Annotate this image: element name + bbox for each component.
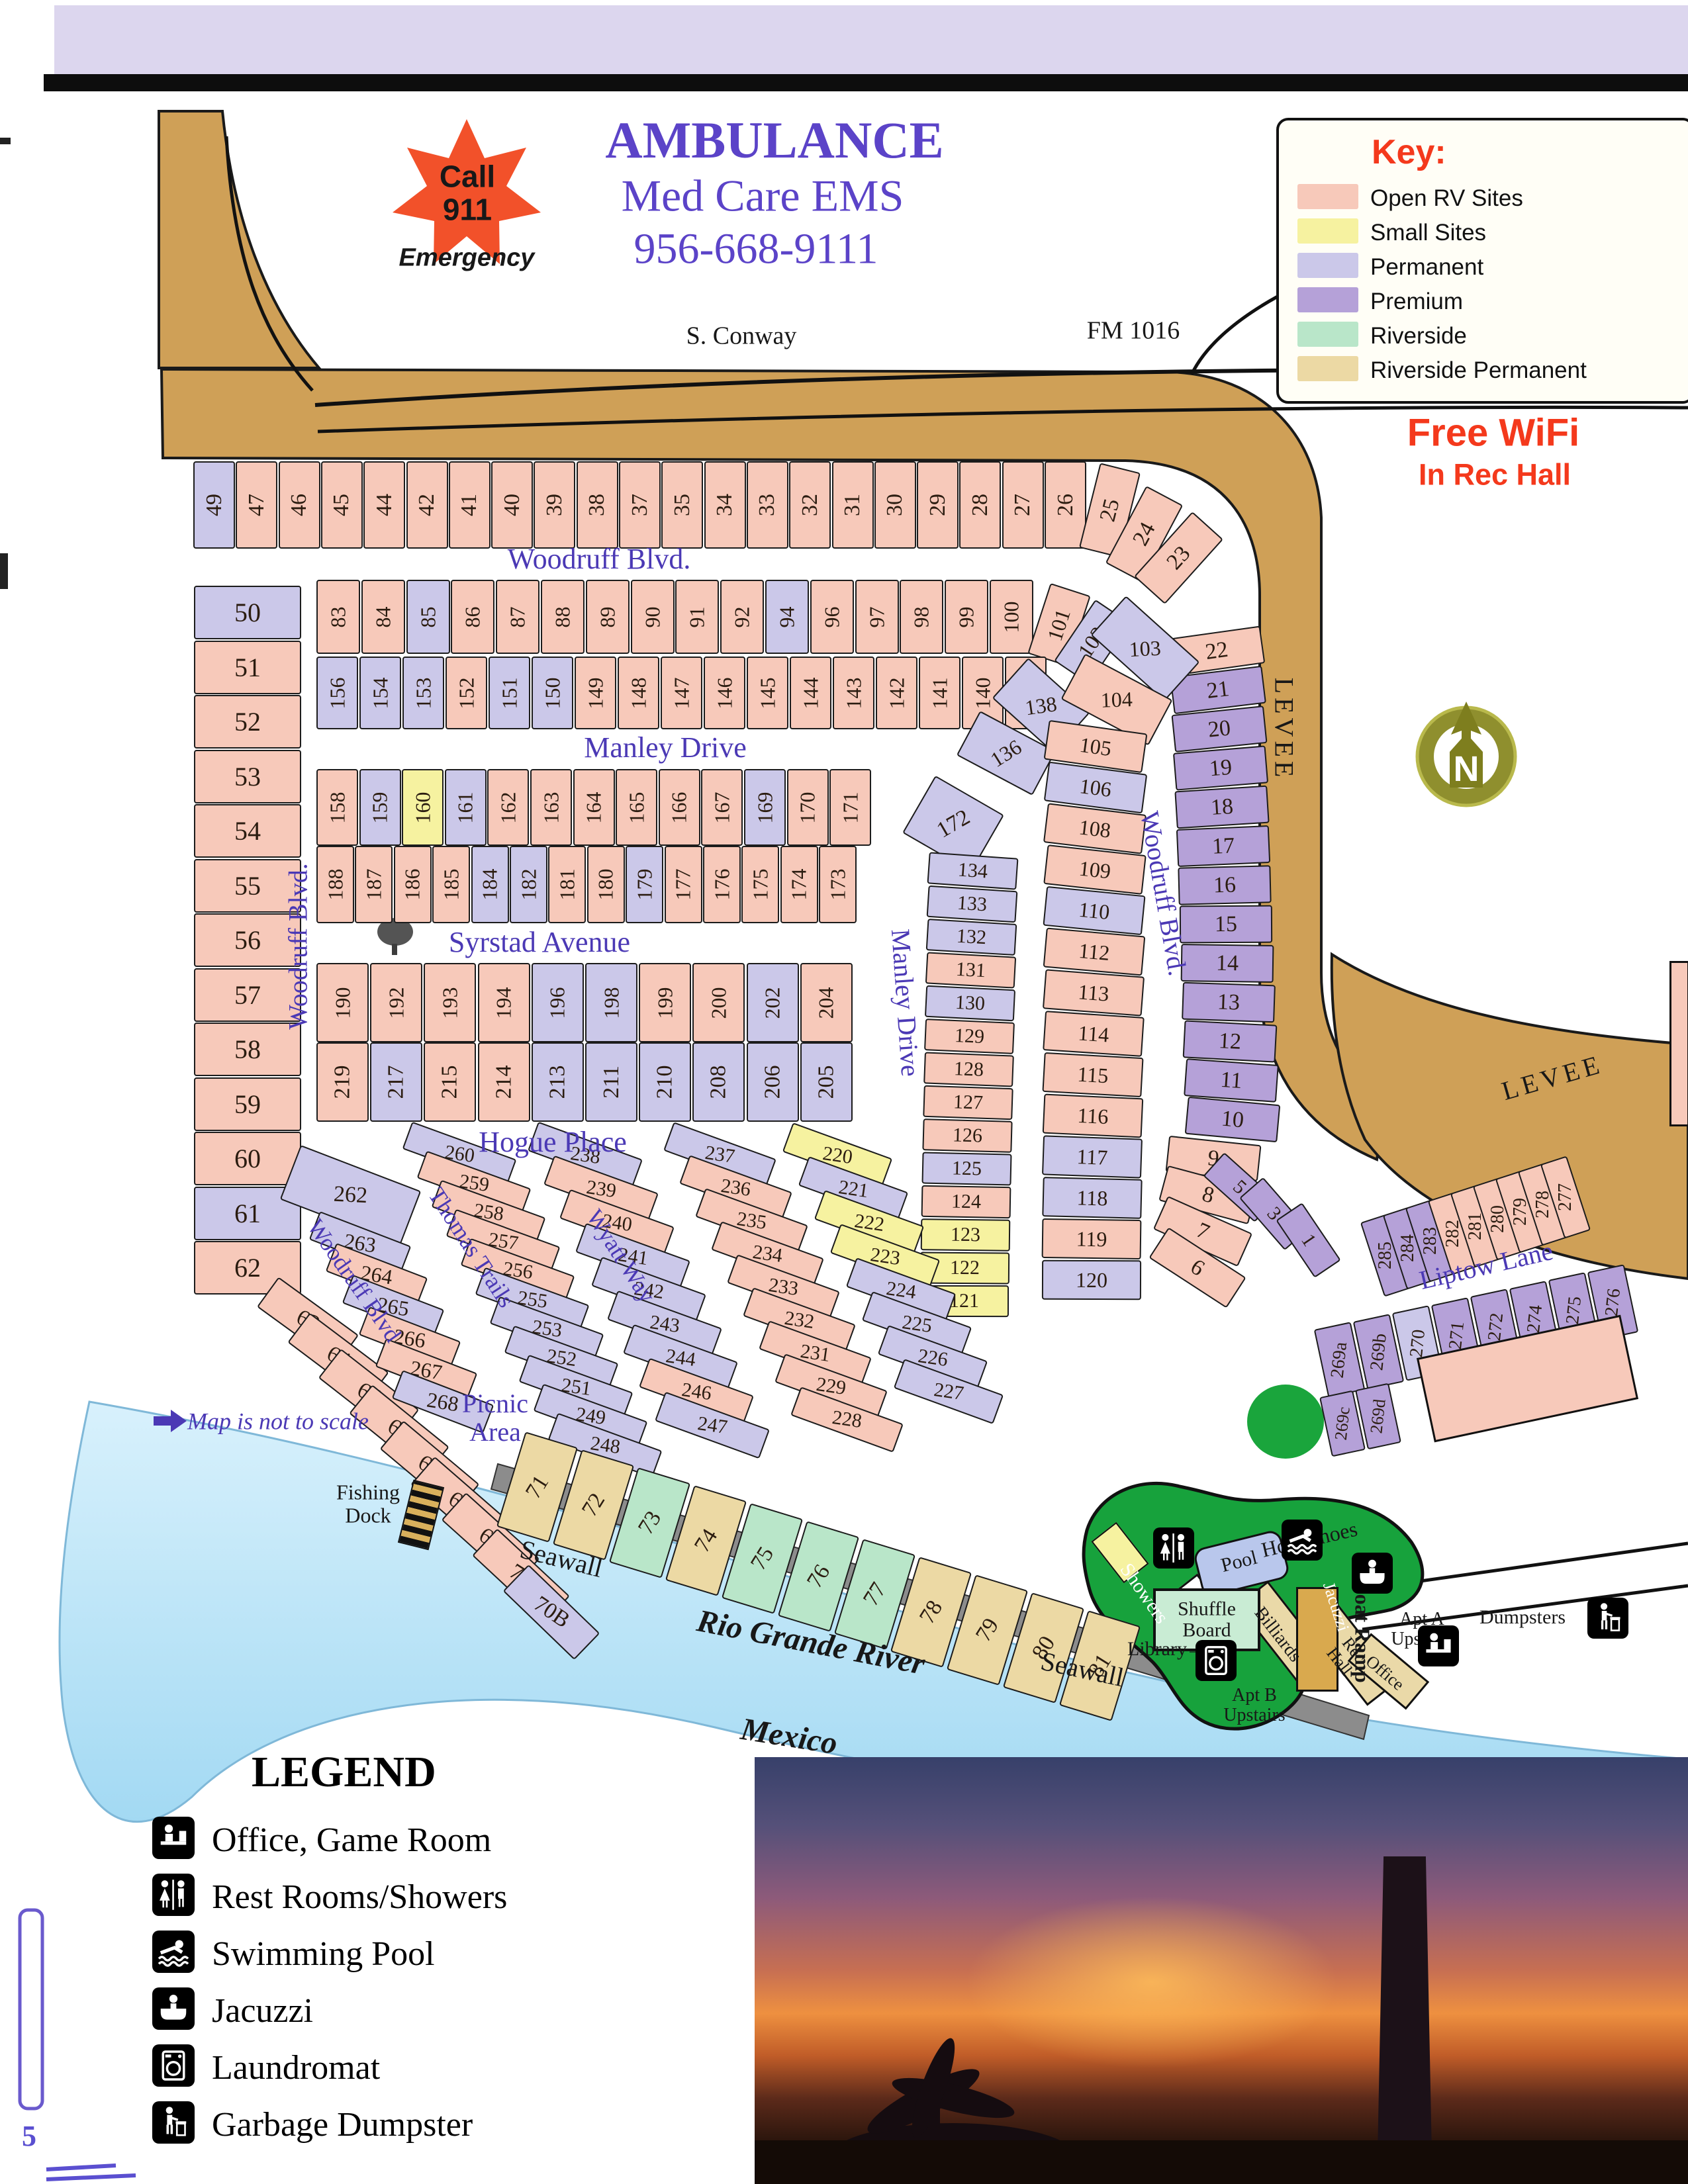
key-swatch bbox=[1297, 253, 1358, 278]
site-143: 143 bbox=[833, 657, 874, 729]
site-150: 150 bbox=[532, 657, 573, 729]
site-99: 99 bbox=[945, 580, 988, 654]
site-15: 15 bbox=[1180, 905, 1272, 944]
site-97: 97 bbox=[855, 580, 899, 654]
site-165: 165 bbox=[616, 769, 657, 846]
site-87: 87 bbox=[496, 580, 539, 654]
site-128: 128 bbox=[923, 1052, 1014, 1087]
site-215: 215 bbox=[424, 1042, 476, 1122]
map-label: Woodruff Blvd. bbox=[283, 863, 312, 1030]
key-item-label: Premium bbox=[1370, 289, 1463, 315]
site-17: 17 bbox=[1176, 825, 1270, 867]
site-200: 200 bbox=[692, 963, 745, 1042]
site-53: 53 bbox=[194, 750, 301, 803]
site-92: 92 bbox=[720, 580, 764, 654]
site-44: 44 bbox=[363, 461, 405, 549]
site-120: 120 bbox=[1041, 1260, 1141, 1300]
site-58: 58 bbox=[194, 1023, 301, 1076]
site-171: 171 bbox=[829, 769, 871, 846]
site-169: 169 bbox=[744, 769, 786, 846]
page-edge-mark bbox=[0, 138, 11, 144]
key-swatch bbox=[1297, 356, 1358, 381]
site-177: 177 bbox=[665, 846, 702, 923]
page-artifact bbox=[46, 2175, 136, 2179]
map-label: In Rec Hall bbox=[1419, 459, 1571, 492]
site-170: 170 bbox=[787, 769, 829, 846]
site-144: 144 bbox=[790, 657, 831, 729]
site-219: 219 bbox=[316, 1042, 369, 1122]
site-161: 161 bbox=[445, 769, 487, 846]
map-label: 956-668-9111 bbox=[633, 225, 878, 272]
map-label: Free WiFi bbox=[1407, 413, 1580, 455]
key-swatch bbox=[1297, 287, 1358, 312]
site-162: 162 bbox=[487, 769, 529, 846]
open-rv-block-edge bbox=[1669, 961, 1688, 1126]
site-11: 11 bbox=[1184, 1058, 1279, 1103]
site-49: 49 bbox=[193, 461, 235, 549]
site-40: 40 bbox=[491, 461, 533, 549]
site-37: 37 bbox=[619, 461, 661, 549]
sunset-photo bbox=[755, 1757, 1688, 2184]
site-16: 16 bbox=[1178, 865, 1271, 905]
site-30: 30 bbox=[874, 461, 916, 549]
site-88: 88 bbox=[541, 580, 585, 654]
key-swatch bbox=[1297, 218, 1358, 244]
site-114: 114 bbox=[1043, 1011, 1145, 1057]
key-item-label: Open RV Sites bbox=[1370, 185, 1523, 212]
site-32: 32 bbox=[789, 461, 831, 549]
map-label: Woodruff Blvd. bbox=[508, 543, 691, 575]
map-key: Key: Open RV SitesSmall SitesPermanentPr… bbox=[1276, 118, 1688, 404]
site-115: 115 bbox=[1042, 1052, 1143, 1097]
site-217: 217 bbox=[370, 1042, 422, 1122]
site-194: 194 bbox=[478, 963, 530, 1042]
site-199: 199 bbox=[639, 963, 691, 1042]
site-181: 181 bbox=[548, 846, 586, 923]
site-83: 83 bbox=[316, 580, 360, 654]
site-85: 85 bbox=[406, 580, 450, 654]
key-item: Premium bbox=[1279, 287, 1688, 314]
site-146: 146 bbox=[704, 657, 745, 729]
site-38: 38 bbox=[577, 461, 618, 549]
map-label: Med Care EMS bbox=[622, 171, 904, 220]
site-131: 131 bbox=[925, 952, 1016, 988]
site-127: 127 bbox=[923, 1085, 1013, 1120]
map-label: Fishing Dock bbox=[336, 1480, 400, 1526]
site-13: 13 bbox=[1182, 982, 1276, 1023]
jacuzzi-icon bbox=[152, 1987, 195, 2030]
legend-item-label: Swimming Pool bbox=[212, 1934, 435, 1974]
site-173: 173 bbox=[819, 846, 857, 923]
rest-rooms-showers-icon bbox=[152, 1874, 195, 1916]
site-188: 188 bbox=[316, 846, 354, 923]
site-152: 152 bbox=[445, 657, 487, 729]
site-180: 180 bbox=[587, 846, 625, 923]
key-swatch bbox=[1297, 184, 1358, 209]
garbage-dumpster-icon bbox=[152, 2101, 195, 2144]
map-label: Hogue Place bbox=[479, 1126, 627, 1158]
site-182: 182 bbox=[510, 846, 547, 923]
site-148: 148 bbox=[618, 657, 659, 729]
site-145: 145 bbox=[747, 657, 788, 729]
key-swatch bbox=[1297, 322, 1358, 347]
site-98: 98 bbox=[900, 580, 943, 654]
legend-item-label: Rest Rooms/Showers bbox=[212, 1878, 507, 1917]
site-113: 113 bbox=[1043, 969, 1145, 1016]
key-item: Riverside bbox=[1279, 322, 1688, 348]
site-18: 18 bbox=[1174, 786, 1269, 829]
site-133: 133 bbox=[927, 886, 1018, 923]
site-192: 192 bbox=[370, 963, 422, 1042]
site-46: 46 bbox=[279, 461, 320, 549]
site-159: 159 bbox=[359, 769, 401, 846]
site-125: 125 bbox=[921, 1152, 1011, 1185]
key-title: Key: bbox=[1372, 132, 1446, 172]
site-130: 130 bbox=[925, 985, 1015, 1022]
map-label: FM 1016 bbox=[1087, 317, 1180, 344]
site-213: 213 bbox=[532, 1042, 584, 1122]
site-205: 205 bbox=[800, 1042, 853, 1122]
site-214: 214 bbox=[478, 1042, 530, 1122]
site-96: 96 bbox=[810, 580, 854, 654]
site-186: 186 bbox=[394, 846, 432, 923]
map-label: AMBULANCE bbox=[605, 113, 943, 168]
page-edge-mark bbox=[0, 553, 8, 589]
key-item: Open RV Sites bbox=[1279, 184, 1688, 210]
site-27: 27 bbox=[1002, 461, 1044, 549]
site-35: 35 bbox=[661, 461, 703, 549]
site-89: 89 bbox=[586, 580, 630, 654]
rest-rooms-icon bbox=[1153, 1527, 1194, 1569]
jacuzzi-icon bbox=[1352, 1553, 1393, 1594]
site-149: 149 bbox=[575, 657, 616, 729]
site-132: 132 bbox=[926, 919, 1017, 956]
key-item-label: Riverside Permanent bbox=[1370, 357, 1587, 384]
office-game-room-icon bbox=[152, 1817, 195, 1859]
site-175: 175 bbox=[741, 846, 779, 923]
site-33: 33 bbox=[747, 461, 788, 549]
site-134: 134 bbox=[927, 852, 1018, 889]
key-item-label: Riverside bbox=[1370, 323, 1467, 349]
key-item-label: Small Sites bbox=[1370, 220, 1486, 246]
office-game-room-icon bbox=[1418, 1625, 1459, 1666]
site-119: 119 bbox=[1042, 1218, 1142, 1259]
legend-item-label: Laundromat bbox=[212, 2048, 380, 2087]
site-117: 117 bbox=[1042, 1135, 1143, 1178]
top-lavender-bar bbox=[54, 5, 1688, 74]
map-label: Boat Ramp bbox=[1351, 1580, 1374, 1683]
site-141: 141 bbox=[919, 657, 961, 729]
site-160: 160 bbox=[402, 769, 444, 846]
key-item: Riverside Permanent bbox=[1279, 356, 1688, 383]
site-167: 167 bbox=[701, 769, 743, 846]
site-42: 42 bbox=[406, 461, 448, 549]
site-208: 208 bbox=[692, 1042, 745, 1122]
site-206: 206 bbox=[747, 1042, 799, 1122]
map-label: Manley Drive bbox=[584, 732, 747, 764]
site-202: 202 bbox=[747, 963, 799, 1042]
site-163: 163 bbox=[530, 769, 572, 846]
map-label: 5 bbox=[22, 2120, 36, 2152]
site-28: 28 bbox=[959, 461, 1001, 549]
site-142: 142 bbox=[876, 657, 917, 729]
rv-park-map-page: N Key: Open RV SitesSmall SitesPermanent… bbox=[0, 0, 1688, 2184]
site-94: 94 bbox=[765, 580, 809, 654]
site-211: 211 bbox=[585, 1042, 637, 1122]
site-174: 174 bbox=[780, 846, 818, 923]
site-54: 54 bbox=[194, 804, 301, 858]
site-51: 51 bbox=[194, 641, 301, 694]
site-100: 100 bbox=[990, 580, 1033, 654]
site-91: 91 bbox=[675, 580, 719, 654]
swimming-pool-icon bbox=[152, 1931, 195, 1973]
legend-item-label: Jacuzzi bbox=[212, 1991, 313, 2030]
site-12: 12 bbox=[1183, 1020, 1278, 1062]
map-label: Shuffle Board bbox=[1178, 1599, 1236, 1642]
swimming-pool-icon bbox=[1282, 1520, 1323, 1561]
key-item-label: Permanent bbox=[1370, 254, 1483, 281]
site-60: 60 bbox=[194, 1132, 301, 1185]
site-158: 158 bbox=[316, 769, 358, 846]
top-black-bar bbox=[44, 74, 1688, 91]
site-86: 86 bbox=[451, 580, 494, 654]
site-210: 210 bbox=[639, 1042, 691, 1122]
map-label: Map is not to scale bbox=[187, 1409, 369, 1435]
map-label: Picnic Area bbox=[462, 1389, 528, 1446]
map-label: Call 911 bbox=[440, 160, 495, 226]
map-label: Syrstad Avenue bbox=[449, 927, 630, 958]
site-164: 164 bbox=[573, 769, 615, 846]
site-90: 90 bbox=[631, 580, 675, 654]
site-198: 198 bbox=[585, 963, 637, 1042]
site-184: 184 bbox=[471, 846, 509, 923]
legend-title: LEGEND bbox=[252, 1747, 436, 1797]
site-123: 123 bbox=[921, 1218, 1011, 1251]
site-154: 154 bbox=[359, 657, 401, 729]
tree bbox=[1247, 1385, 1324, 1459]
site-47: 47 bbox=[236, 461, 277, 549]
site-204: 204 bbox=[800, 963, 853, 1042]
site-14: 14 bbox=[1181, 944, 1274, 983]
site-29: 29 bbox=[917, 461, 959, 549]
site-31: 31 bbox=[832, 461, 874, 549]
site-116: 116 bbox=[1042, 1094, 1143, 1138]
site-59: 59 bbox=[194, 1077, 301, 1131]
site-26: 26 bbox=[1045, 461, 1086, 549]
legend-item-label: Garbage Dumpster bbox=[212, 2105, 473, 2144]
page-artifact bbox=[20, 1910, 42, 2109]
site-118: 118 bbox=[1042, 1177, 1142, 1219]
palm-silhouette bbox=[755, 1757, 1688, 2184]
site-179: 179 bbox=[626, 846, 663, 923]
legend-item-label: Office, Game Room bbox=[212, 1821, 491, 1860]
site-52: 52 bbox=[194, 695, 301, 749]
map-label: S. Conway bbox=[686, 322, 797, 349]
key-item: Small Sites bbox=[1279, 218, 1688, 245]
laundromat-icon bbox=[1196, 1640, 1237, 1681]
garbage-dumpster-icon bbox=[1587, 1598, 1628, 1639]
site-39: 39 bbox=[534, 461, 575, 549]
photo-ground bbox=[755, 2140, 1688, 2184]
map-label: Dumpsters bbox=[1479, 1607, 1566, 1628]
site-176: 176 bbox=[703, 846, 741, 923]
site-129: 129 bbox=[924, 1019, 1015, 1054]
site-193: 193 bbox=[424, 963, 476, 1042]
laundromat-icon bbox=[152, 2044, 195, 2087]
site-19: 19 bbox=[1173, 745, 1268, 790]
site-185: 185 bbox=[432, 846, 470, 923]
key-item: Permanent bbox=[1279, 253, 1688, 279]
site-196: 196 bbox=[532, 963, 584, 1042]
key-connector-line bbox=[1192, 296, 1278, 375]
map-label: Emergency bbox=[399, 244, 535, 271]
site-166: 166 bbox=[659, 769, 700, 846]
map-label: LEVEE bbox=[1270, 678, 1298, 782]
map-label: Library bbox=[1127, 1639, 1187, 1660]
page-artifact bbox=[46, 2165, 116, 2169]
north-compass-icon: N bbox=[1417, 702, 1515, 805]
site-45: 45 bbox=[321, 461, 363, 549]
site-190: 190 bbox=[316, 963, 369, 1042]
site-34: 34 bbox=[704, 461, 746, 549]
site-147: 147 bbox=[661, 657, 702, 729]
map-label: Apt B Upstairs bbox=[1223, 1686, 1285, 1725]
site-41: 41 bbox=[449, 461, 491, 549]
site-187: 187 bbox=[355, 846, 393, 923]
svg-text:N: N bbox=[1454, 749, 1479, 789]
site-151: 151 bbox=[489, 657, 530, 729]
site-156: 156 bbox=[316, 657, 358, 729]
site-153: 153 bbox=[402, 657, 444, 729]
site-126: 126 bbox=[922, 1118, 1012, 1153]
site-124: 124 bbox=[921, 1185, 1011, 1218]
site-50: 50 bbox=[194, 586, 301, 639]
site-84: 84 bbox=[361, 580, 405, 654]
